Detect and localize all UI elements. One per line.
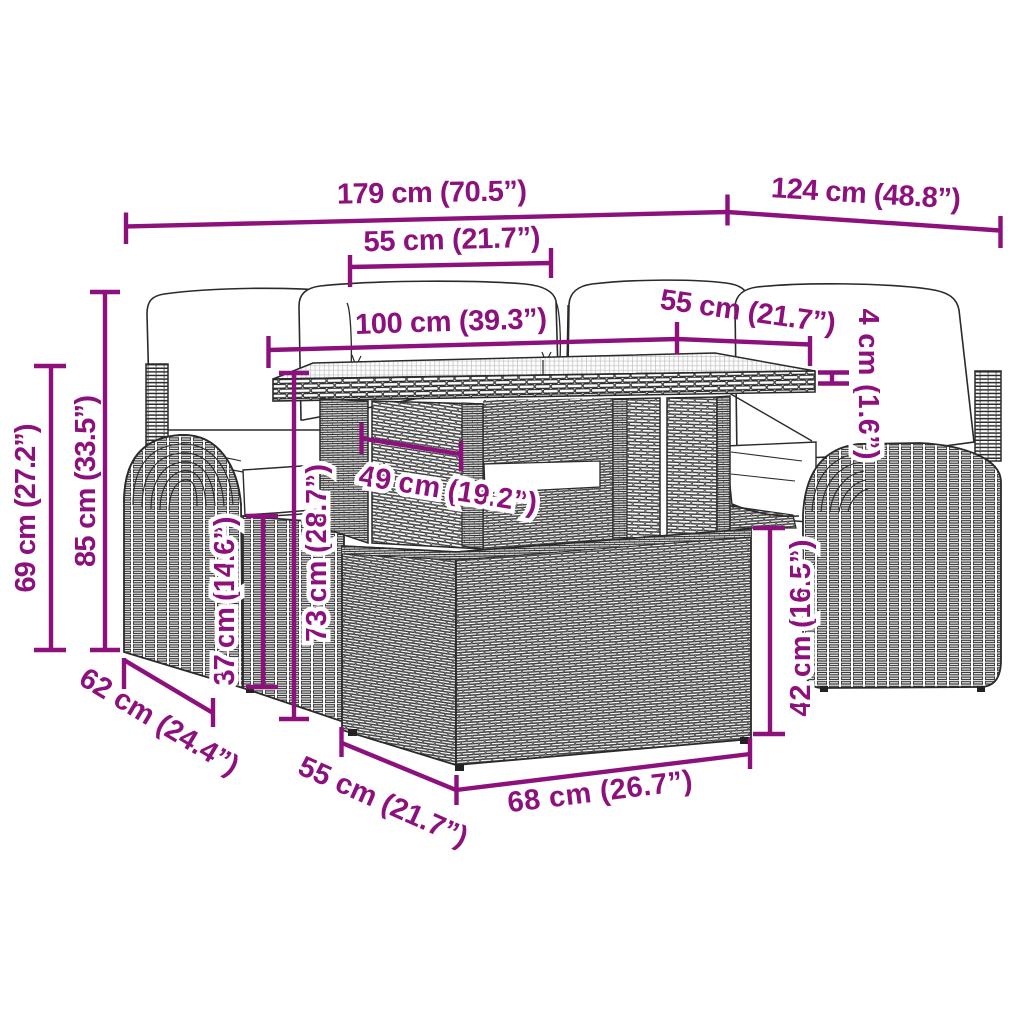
svg-text:73 cm (28.7”): 73 cm (28.7”) <box>301 464 333 642</box>
svg-text:42 cm (16.5”): 42 cm (16.5”) <box>785 540 817 717</box>
svg-text:37 cm (14.6”): 37 cm (14.6”) <box>209 517 241 686</box>
svg-text:55 cm (21.7”): 55 cm (21.7”) <box>363 222 541 259</box>
svg-text:100 cm (39.3”): 100 cm (39.3”) <box>355 303 548 341</box>
svg-text:4 cm (1.6”): 4 cm (1.6”) <box>852 309 884 460</box>
svg-text:69 cm (27.2”): 69 cm (27.2”) <box>10 424 42 593</box>
svg-text:85 cm (33.5”): 85 cm (33.5”) <box>70 395 102 567</box>
svg-text:179 cm (70.5”): 179 cm (70.5”) <box>337 175 528 210</box>
